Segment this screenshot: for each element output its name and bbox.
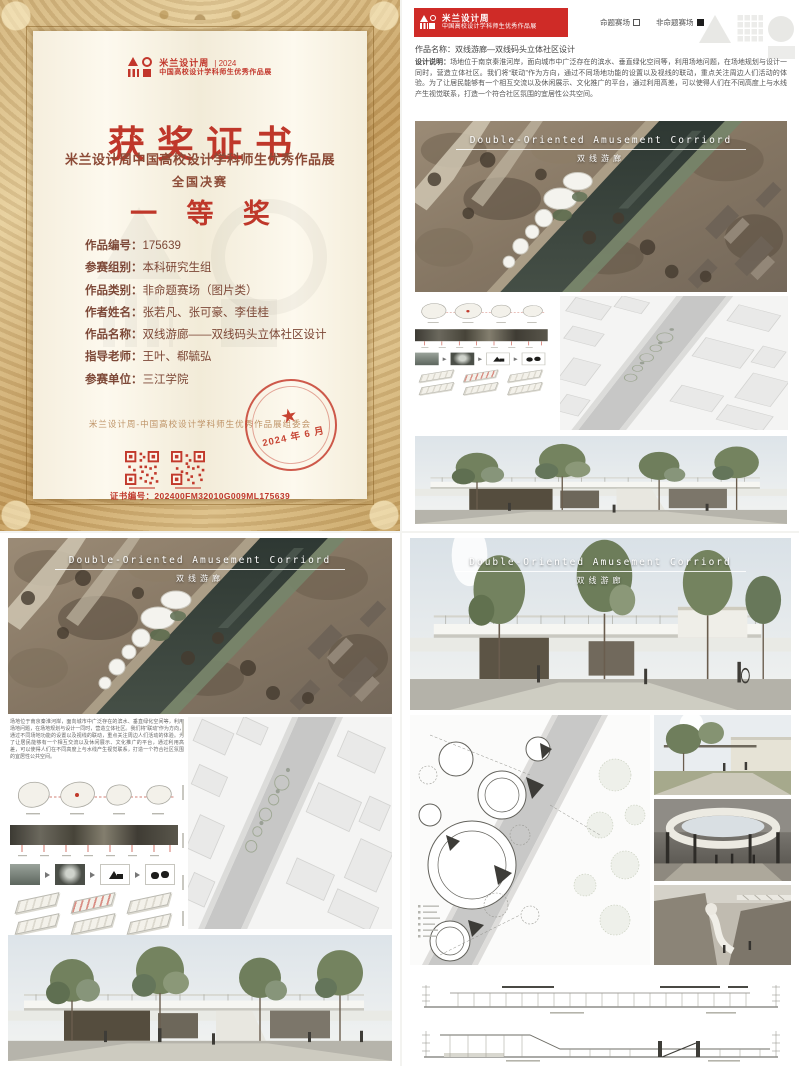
certificate-body: 米兰设计周| 2024 中国高校设计学科师生优秀作品展 获奖证书 米兰设计周中国… <box>33 31 367 499</box>
brand-glyph-icon <box>128 57 153 78</box>
axon-slab <box>71 913 116 935</box>
axon-slab <box>507 382 542 395</box>
arrow-icon <box>514 357 518 361</box>
massing-axonometrics <box>415 372 556 392</box>
qr-code <box>125 451 159 485</box>
arrow-icon <box>90 872 95 878</box>
street-render <box>415 436 787 524</box>
certificate-field: 作品编号：175639 <box>85 237 327 259</box>
ornament-crest <box>140 0 260 20</box>
collage-page: 米兰设计周| 2024 中国高校设计学科师生优秀作品展 获奖证书 米兰设计周中国… <box>0 0 799 1066</box>
stage-line: 全国决赛 <box>33 173 367 190</box>
project-title-cn: 双线游廊 <box>410 575 791 586</box>
axon-slab <box>15 913 60 935</box>
work-title-line: 作品名称：双线游廊—双线码头立体社区设计 <box>415 44 575 55</box>
circle-icon <box>768 16 794 42</box>
section-label <box>182 875 184 890</box>
grid-square-icon <box>736 15 763 43</box>
section-label <box>182 721 184 736</box>
design-description: 设计说明：场地位于南京秦淮河岸，面向城市中广泛存在的滨水、垂直绿化空间等，利用场… <box>415 58 787 100</box>
concept-process-diagram <box>415 353 551 366</box>
arrow-icon <box>135 872 140 878</box>
brand-glyph-icon <box>420 15 437 30</box>
axon-slab <box>71 892 116 914</box>
banner-subtitle: 中国高校设计学科师生优秀作品展 <box>442 24 537 32</box>
axon-slab <box>419 382 454 395</box>
concept-process-diagram <box>10 864 182 885</box>
process-diagram <box>486 353 510 366</box>
project-title-cn: 双线游廊 <box>415 153 787 164</box>
star-icon: ★ <box>279 406 300 428</box>
process-diagram <box>100 864 130 885</box>
certificate-number: 证书编号：202400FM32010G009ML175639 <box>33 490 367 502</box>
photo-strip-callouts <box>415 341 548 350</box>
qr-caption <box>129 487 155 489</box>
axon-slab <box>463 382 498 395</box>
process-image <box>415 353 439 366</box>
category-options: 命题赛场 非命题赛场 <box>600 17 704 28</box>
section-elevation-2 <box>410 1019 791 1063</box>
qr-code <box>171 451 205 485</box>
section-elevation-1 <box>410 973 791 1015</box>
process-image <box>451 353 475 366</box>
brand-year: | 2024 <box>214 59 236 68</box>
certificate-field: 指导老师：王叶、郗毓弘 <box>85 348 327 370</box>
certificate-field: 参赛组别：本科研究生组 <box>85 259 327 281</box>
poster-top-right: 米兰设计周 中国高校设计学科师生优秀作品展 命题赛场 非命题赛场 作品名称：双线… <box>402 0 799 531</box>
certificate-field: 作者姓名：张若凡、张可豪、李佳桂 <box>85 304 327 326</box>
process-image <box>10 864 40 885</box>
category-option: 非命题赛场 <box>656 17 704 28</box>
certificate-field: 作品类别：非命题赛场（图片类） <box>85 282 327 304</box>
design-description: 场地位于南京秦淮河岸，面向城市中广泛存在的滨水、垂直绿化空间等，利用场地问题，在… <box>10 719 184 762</box>
qr-caption <box>175 487 201 489</box>
project-title-en: Double-Oriented Amusement Corriord <box>55 555 345 570</box>
project-title-en: Double-Oriented Amusement Corriord <box>455 557 745 572</box>
oculus-pavilion-render <box>654 799 791 881</box>
aerial-photo: Double-Oriented Amusement Corriord 双线游廊 <box>8 538 392 714</box>
massing-axonometrics <box>10 897 188 930</box>
exhibition-line: 米兰设计周中国高校设计学科师生优秀作品展 <box>33 149 367 168</box>
stamp-date: 2024 年 6 月 <box>261 422 326 449</box>
analysis-diagrams <box>10 773 182 930</box>
poster-bottom-left: Double-Oriented Amusement Corriord 双线游廊 … <box>0 533 400 1066</box>
category-option: 命题赛场 <box>600 17 640 28</box>
process-diagram <box>145 864 175 885</box>
certificate-fields: 作品编号：175639 参赛组别：本科研究生组 作品类别：非命题赛场（图片类） … <box>85 237 327 393</box>
site-plan <box>560 296 788 430</box>
axon-slab <box>127 913 172 935</box>
master-plan <box>410 715 650 965</box>
analysis-diagrams <box>415 298 551 376</box>
axon-slab <box>463 369 498 382</box>
banner-brand: 米兰设计周 <box>442 13 537 24</box>
courtyard-render <box>654 715 791 795</box>
axon-slab <box>127 892 172 914</box>
award-certificate: 米兰设计周| 2024 中国高校设计学科师生优秀作品展 获奖证书 米兰设计周中国… <box>0 0 400 531</box>
axon-slab <box>507 369 542 382</box>
exhibition-logo-gray <box>699 2 795 60</box>
award-grade: 一 等 奖 <box>33 192 367 231</box>
aerial-photo: Double-Oriented Amusement Corriord 双线游廊 <box>415 121 787 292</box>
triangle-icon <box>699 15 731 43</box>
location-maps-diagram <box>10 773 182 819</box>
process-image <box>55 864 85 885</box>
brand-name: 米兰设计周 <box>159 58 209 68</box>
brand-subtitle: 中国高校设计学科师生优秀作品展 <box>159 69 272 78</box>
axon-slab <box>419 369 454 382</box>
arrow-icon <box>443 357 447 361</box>
description-label: 设计说明： <box>415 59 450 66</box>
site-photo-strip <box>415 329 548 341</box>
courtyard-render-wide: Double-Oriented Amusement Corriord 双线游廊 <box>410 538 791 710</box>
process-diagram <box>522 353 546 366</box>
slide-structure-render <box>654 885 791 965</box>
project-title-cn: 双线游廊 <box>8 573 392 584</box>
site-photo-strip <box>10 825 178 845</box>
photo-strip-callouts <box>10 845 178 860</box>
arrow-icon <box>478 357 482 361</box>
section-label <box>182 785 184 800</box>
poster-bottom-right: Double-Oriented Amusement Corriord 双线游廊 <box>402 533 799 1066</box>
site-plan <box>188 717 392 929</box>
arrow-icon <box>45 872 50 878</box>
milan-design-week-logo: 米兰设计周| 2024 中国高校设计学科师生优秀作品展 <box>33 57 367 78</box>
certificate-field: 作品名称：双线游廊——双线码头立体社区设计 <box>85 326 327 348</box>
section-label <box>182 833 184 848</box>
location-maps-diagram <box>415 298 551 326</box>
street-render <box>8 935 392 1061</box>
axon-slab <box>15 892 60 914</box>
project-title-en: Double-Oriented Amusement Corriord <box>456 135 746 150</box>
exhibition-banner: 米兰设计周 中国高校设计学科师生优秀作品展 <box>414 8 568 37</box>
checkbox-unchecked <box>633 19 640 26</box>
